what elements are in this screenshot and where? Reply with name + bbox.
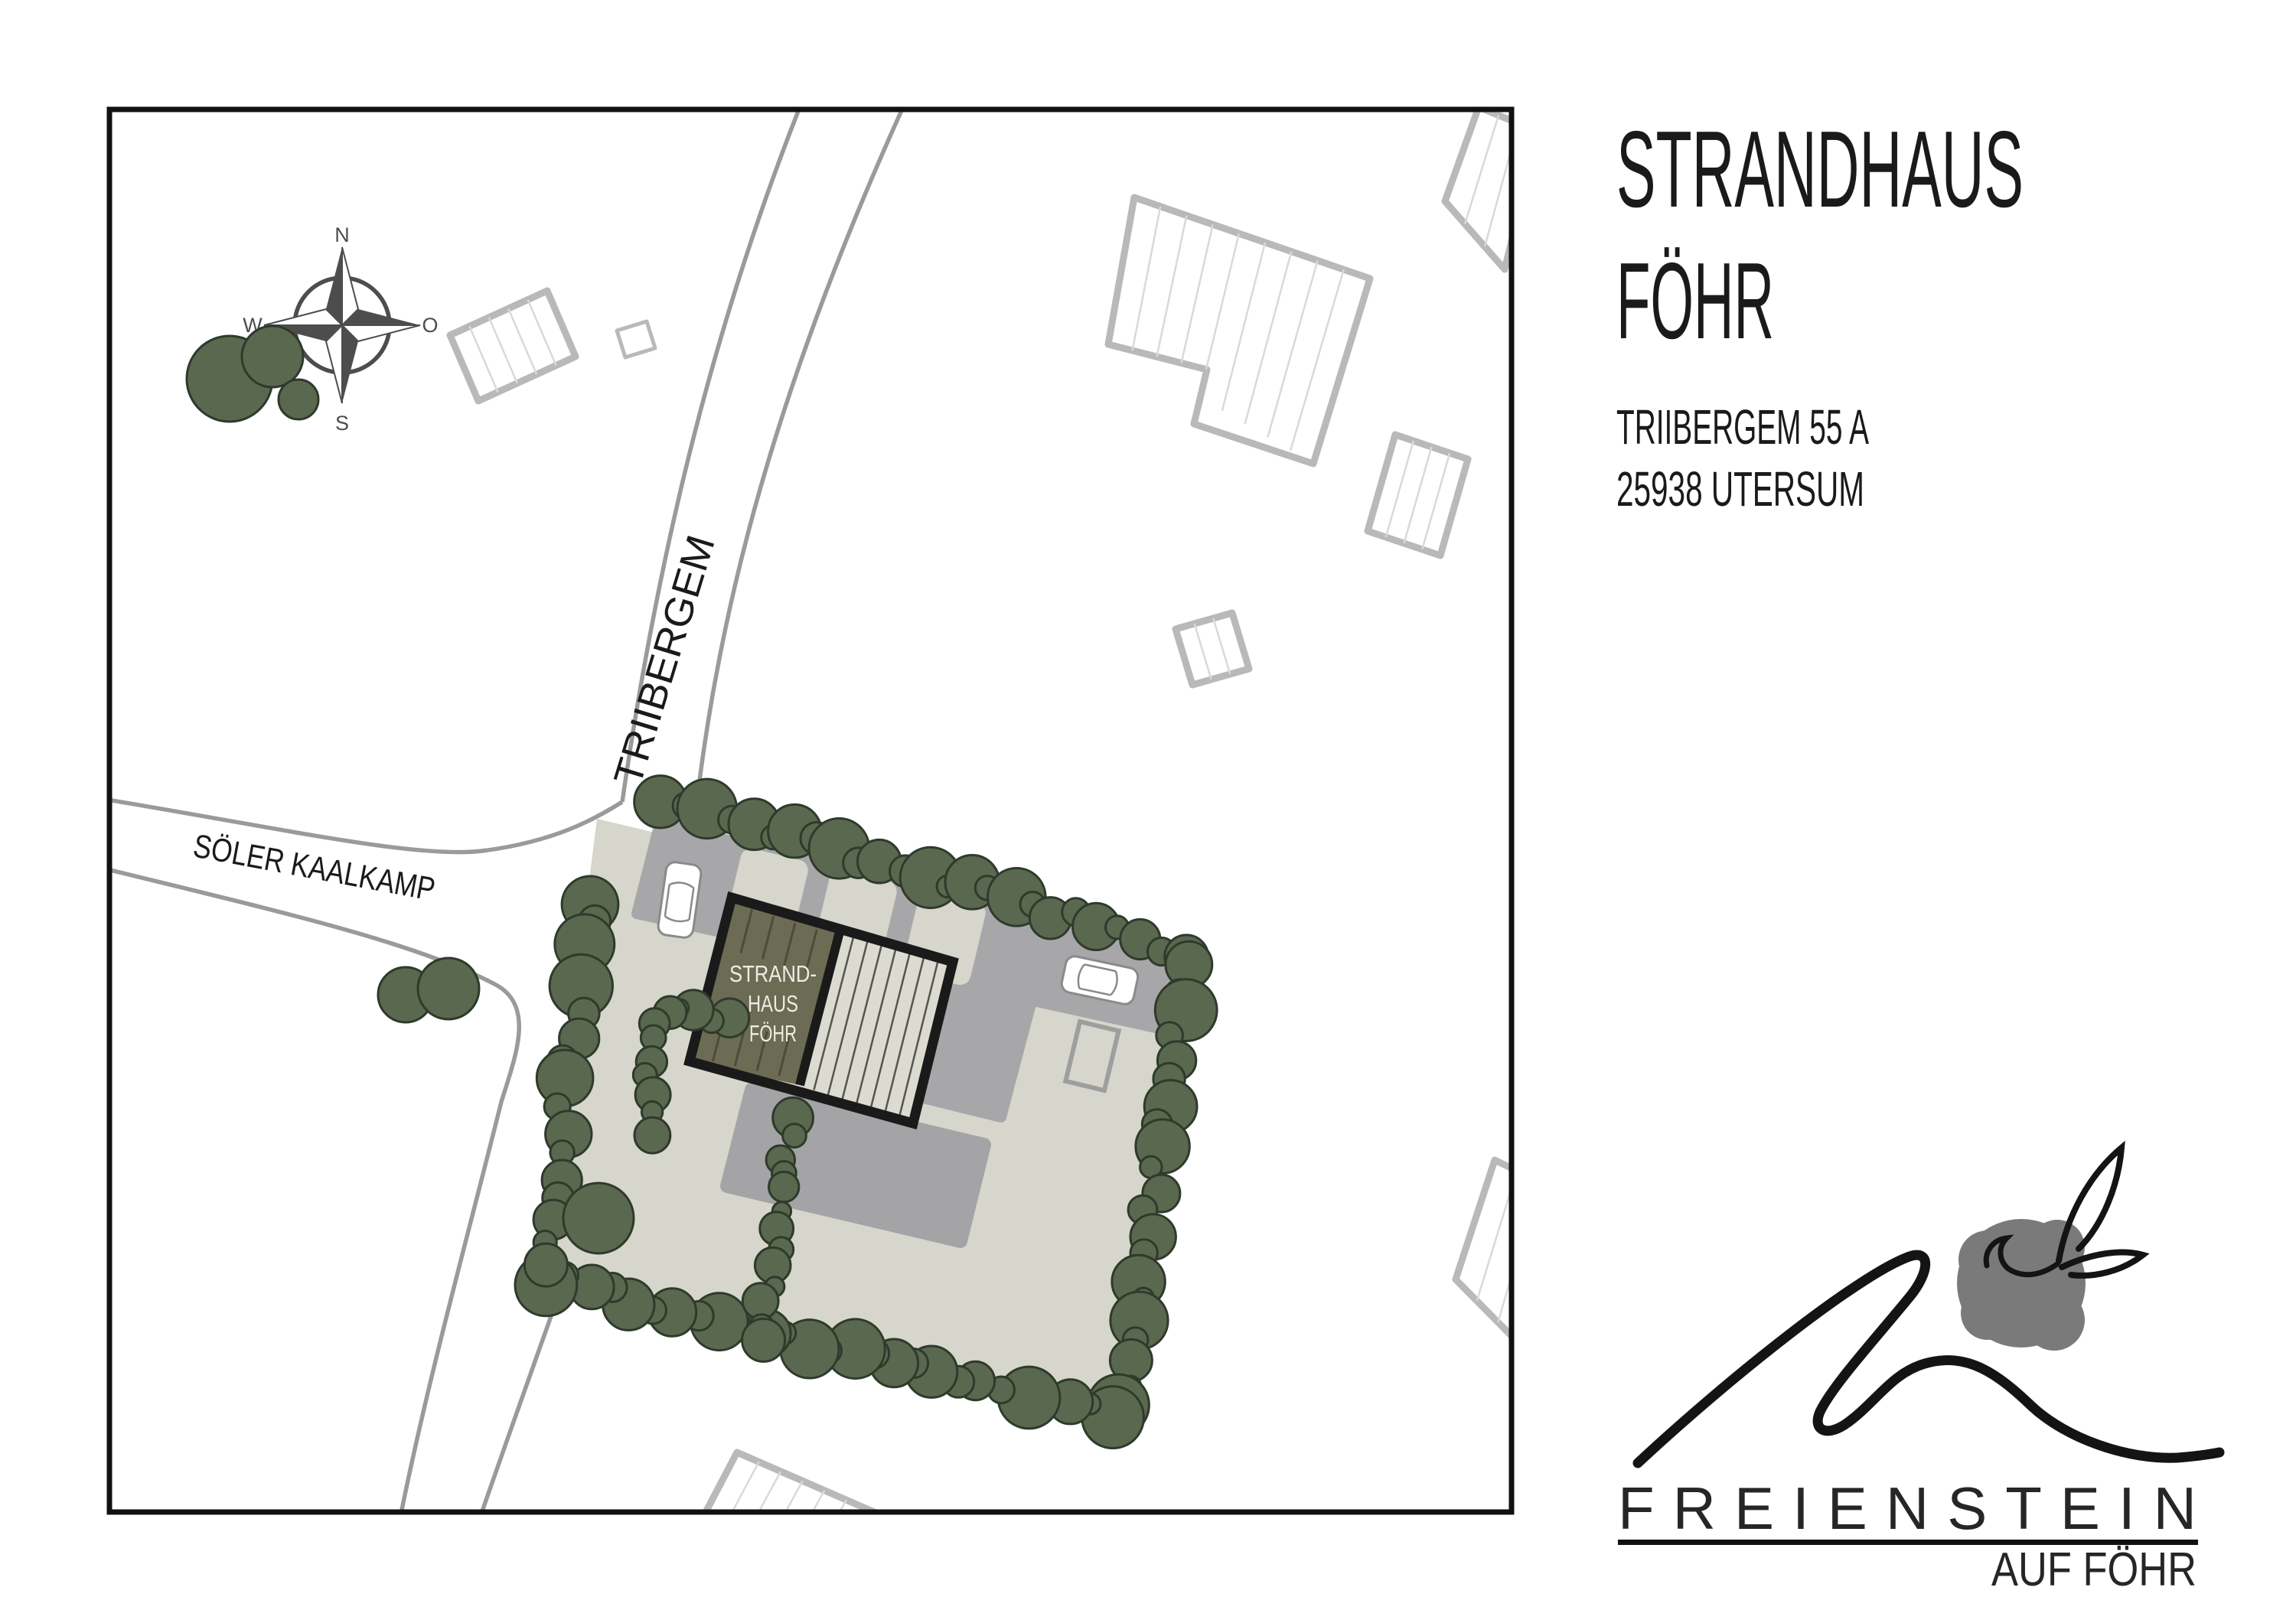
main-building-label-line1: STRAND- (729, 960, 817, 987)
page-title-line1: STRANDHAUS (1616, 109, 2024, 230)
compass-label-n: N (334, 223, 350, 246)
page-title-line2: FÖHR (1616, 240, 1774, 362)
main-building-label-line3: FÖHR (749, 1020, 797, 1047)
logo-wave-squiggle (1638, 1255, 2219, 1463)
tree (742, 1318, 785, 1361)
tree (768, 1172, 798, 1201)
site-plan-page: TRIIBERGEM SÖLER KAALKAMP N O S W (0, 0, 2296, 1623)
title-block: STRANDHAUS FÖHR TRIIBERGEM 55 A 25938 UT… (1616, 109, 2024, 517)
logo-wordmark: FREIENSTEIN (1618, 1475, 2197, 1542)
freienstein-logo: FREIENSTEIN AUF FÖHR (1618, 1148, 2219, 1596)
compass-label-s: S (335, 412, 349, 435)
site-map: TRIIBERGEM SÖLER KAALKAMP N O S W (107, 107, 1561, 1615)
tree (783, 1124, 807, 1148)
compass-label-o: O (422, 314, 438, 337)
roof-stripe (814, 1510, 869, 1605)
tree (418, 958, 479, 1019)
neighbor-building-right-small (1176, 613, 1249, 685)
address-line2: 25938 UTERSUM (1616, 461, 1864, 517)
tree (279, 380, 318, 419)
tree (634, 1117, 670, 1153)
tree (524, 1243, 567, 1286)
tree (563, 1183, 634, 1253)
main-building-label-line2: HAUS (748, 990, 798, 1017)
logo-tagline: AUF FÖHR (1991, 1543, 2197, 1596)
tree (242, 326, 303, 387)
address-line1: TRIIBERGEM 55 A (1616, 399, 1869, 455)
